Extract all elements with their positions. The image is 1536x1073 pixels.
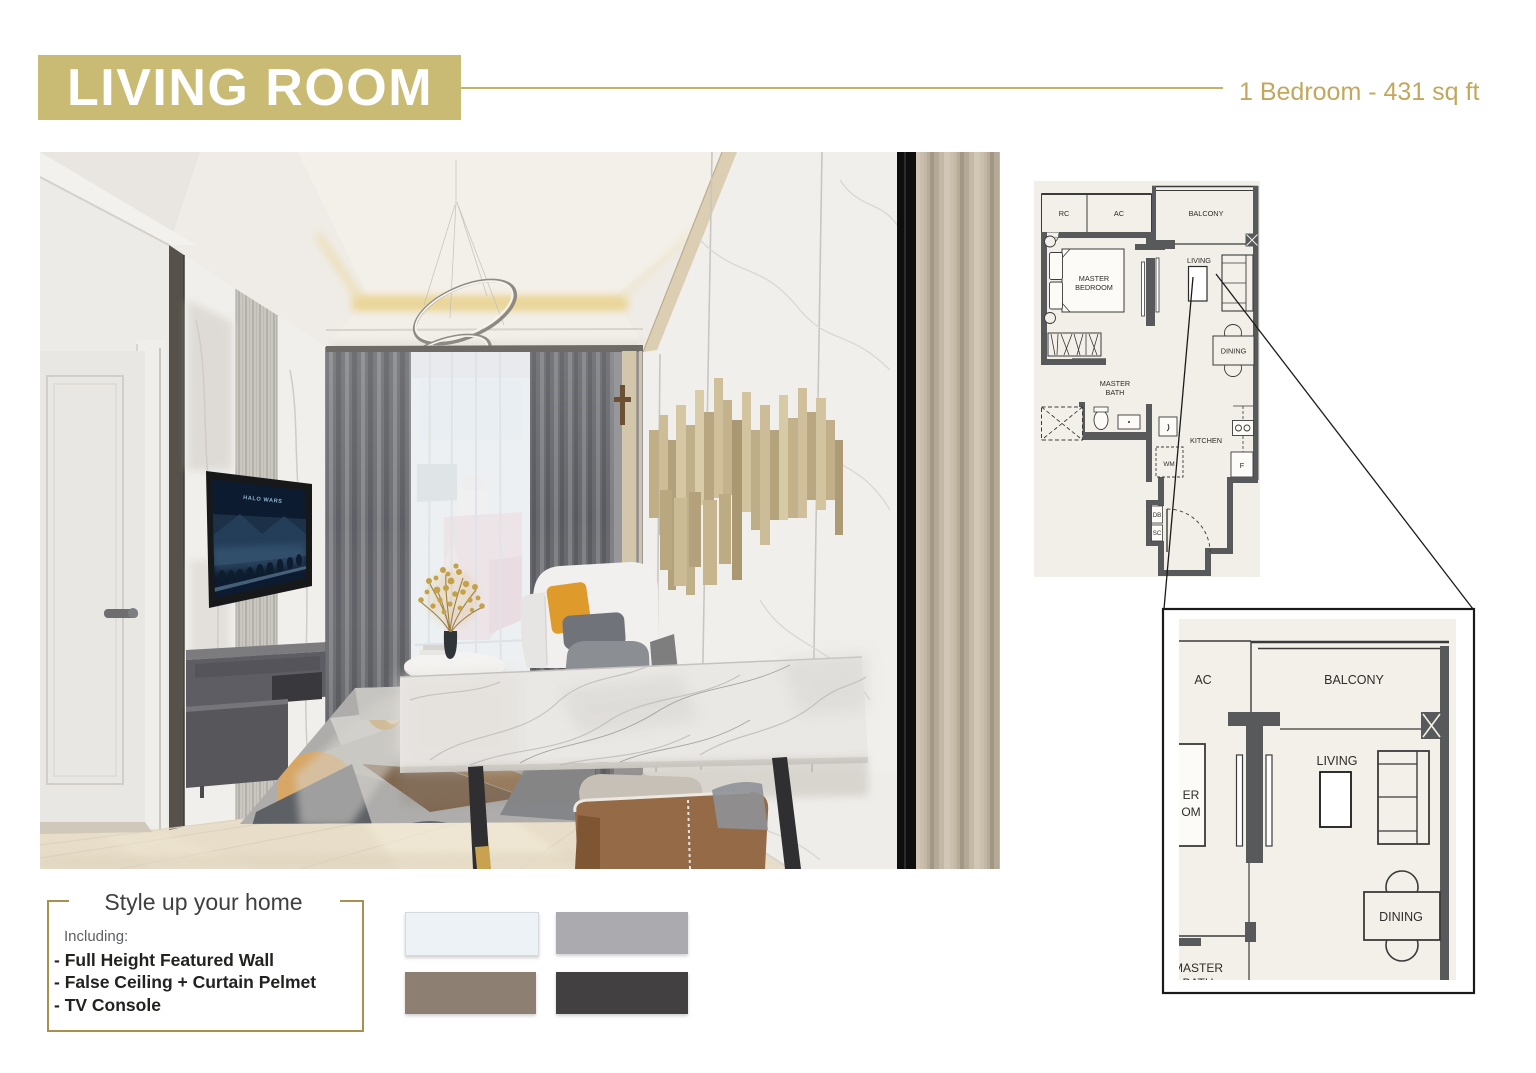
svg-text:LIVING: LIVING (1317, 754, 1358, 768)
svg-text:WM: WM (1163, 461, 1174, 468)
svg-text:DINING: DINING (1379, 910, 1423, 924)
svg-text:AC: AC (1114, 209, 1124, 218)
svg-text:KITCHEN: KITCHEN (1190, 436, 1222, 445)
svg-text:BALCONY: BALCONY (1324, 673, 1384, 687)
svg-text:RC: RC (1059, 209, 1070, 218)
svg-text:BALCONY: BALCONY (1189, 209, 1224, 218)
svg-text:BATH: BATH (1106, 388, 1125, 397)
svg-text:AC: AC (1194, 673, 1211, 687)
svg-text:DB: DB (1153, 512, 1162, 519)
svg-text:MASTER: MASTER (1173, 961, 1223, 975)
svg-text:DINING: DINING (1221, 347, 1247, 356)
svg-text:MASTER: MASTER (1079, 274, 1109, 283)
svg-text:MASTER: MASTER (1100, 379, 1130, 388)
svg-text:LIVING: LIVING (1187, 256, 1211, 265)
svg-text:BEDROOM: BEDROOM (1075, 283, 1113, 292)
svg-text:OM: OM (1181, 805, 1200, 819)
svg-text:ER: ER (1183, 788, 1200, 802)
svg-text:F: F (1240, 461, 1245, 470)
svg-text:SC: SC (1153, 530, 1162, 537)
